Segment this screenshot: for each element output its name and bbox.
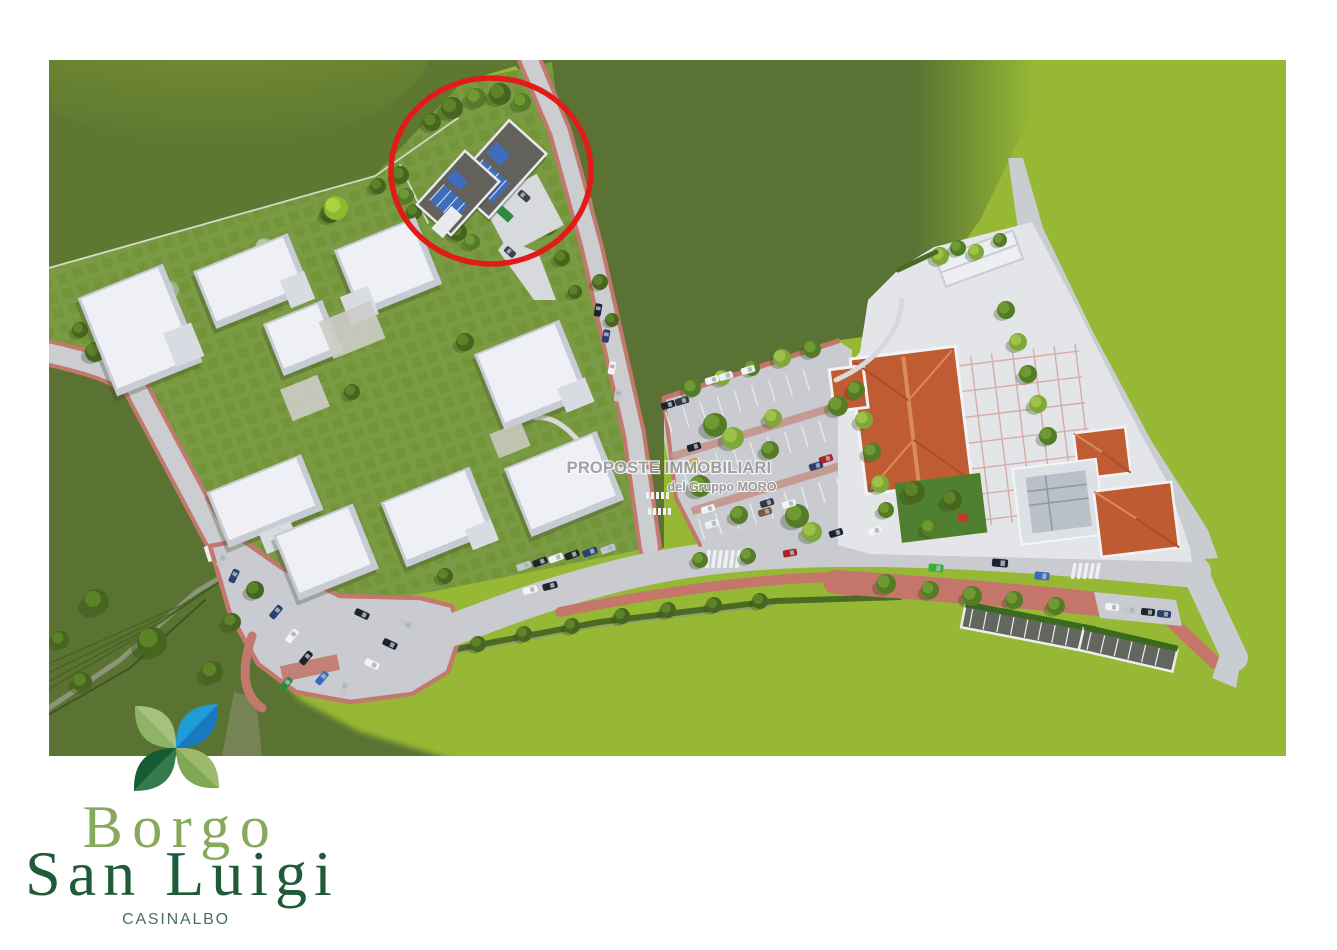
svg-text:San Luigi: San Luigi (25, 838, 339, 909)
svg-text:PROPOSTE IMMOBILIARI: PROPOSTE IMMOBILIARI (567, 459, 772, 477)
svg-text:CASINALBO: CASINALBO (122, 911, 230, 928)
svg-text:del Gruppo MORO: del Gruppo MORO (667, 480, 776, 494)
